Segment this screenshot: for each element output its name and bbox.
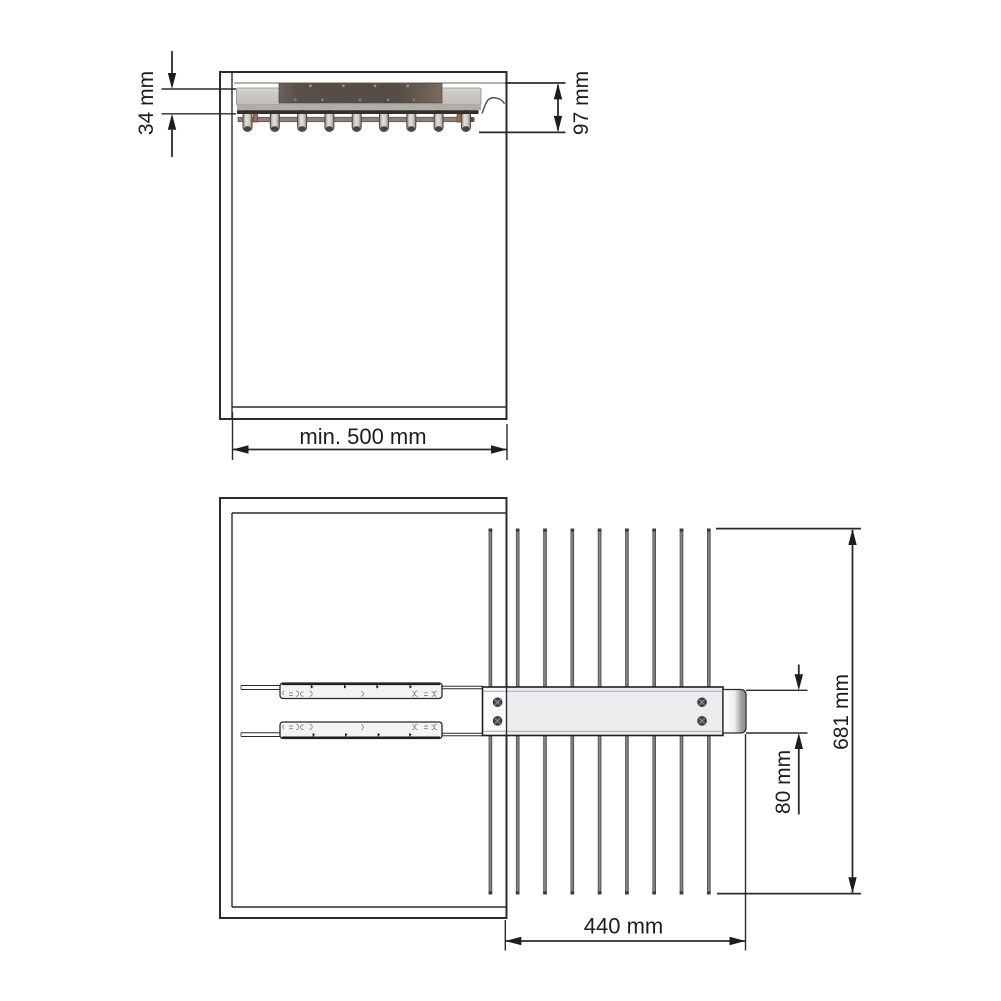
svg-text:34 mm: 34 mm (135, 71, 158, 135)
svg-text:440 mm: 440 mm (584, 913, 663, 938)
svg-text:80 mm: 80 mm (772, 750, 795, 814)
svg-text:97 mm: 97 mm (570, 71, 593, 135)
svg-text:min. 500 mm: min. 500 mm (299, 424, 426, 449)
svg-text:681 mm: 681 mm (830, 674, 853, 750)
